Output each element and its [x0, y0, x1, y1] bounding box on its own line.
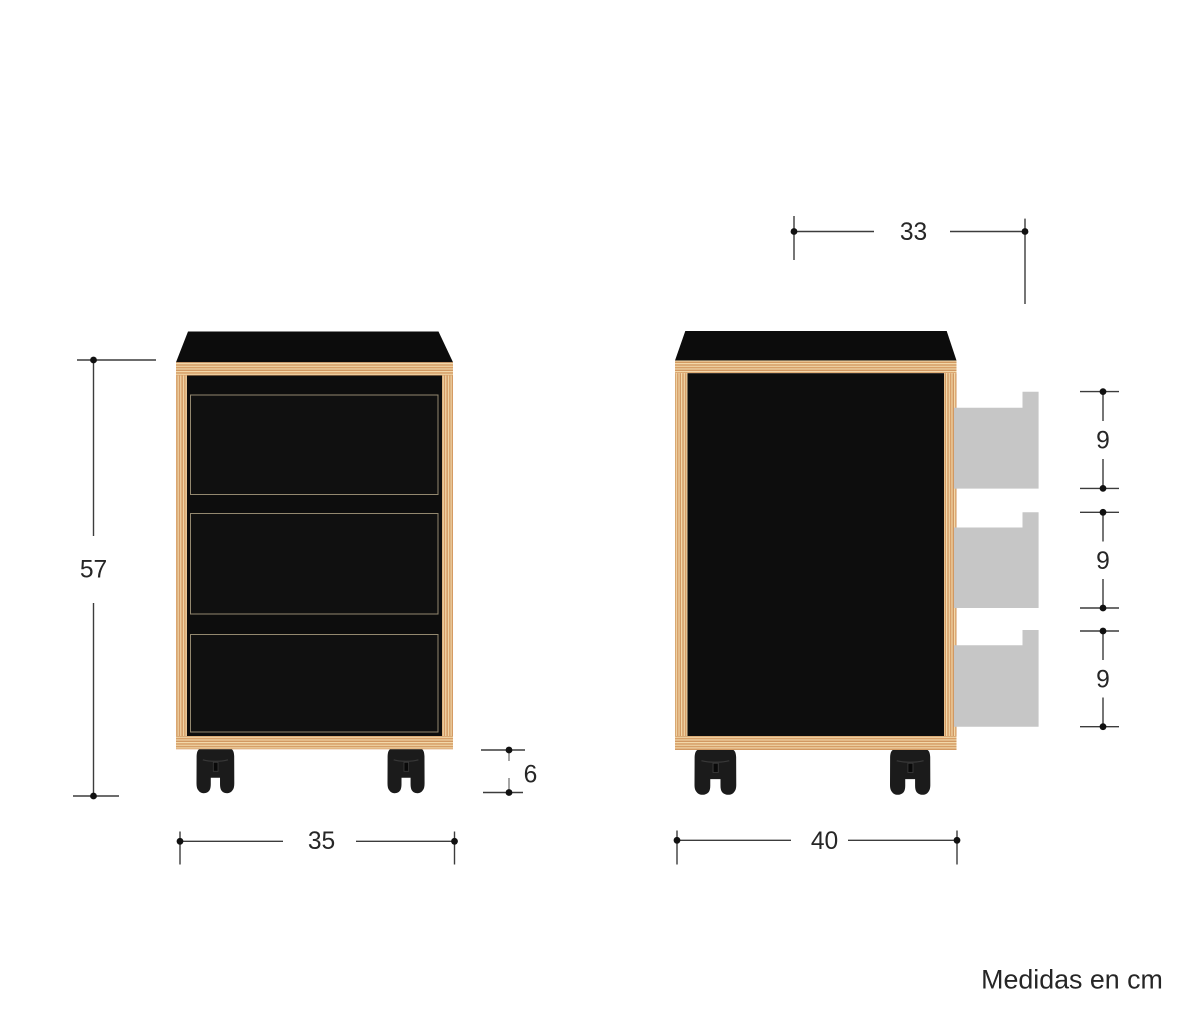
svg-text:9: 9 — [1096, 666, 1110, 693]
svg-text:40: 40 — [811, 828, 838, 855]
svg-text:35: 35 — [308, 828, 335, 855]
svg-text:57: 57 — [80, 557, 107, 584]
svg-text:6: 6 — [524, 762, 538, 789]
svg-text:33: 33 — [900, 219, 927, 246]
svg-text:9: 9 — [1096, 548, 1110, 575]
svg-text:Medidas en cm: Medidas en cm — [981, 965, 1163, 995]
svg-text:9: 9 — [1096, 428, 1110, 455]
